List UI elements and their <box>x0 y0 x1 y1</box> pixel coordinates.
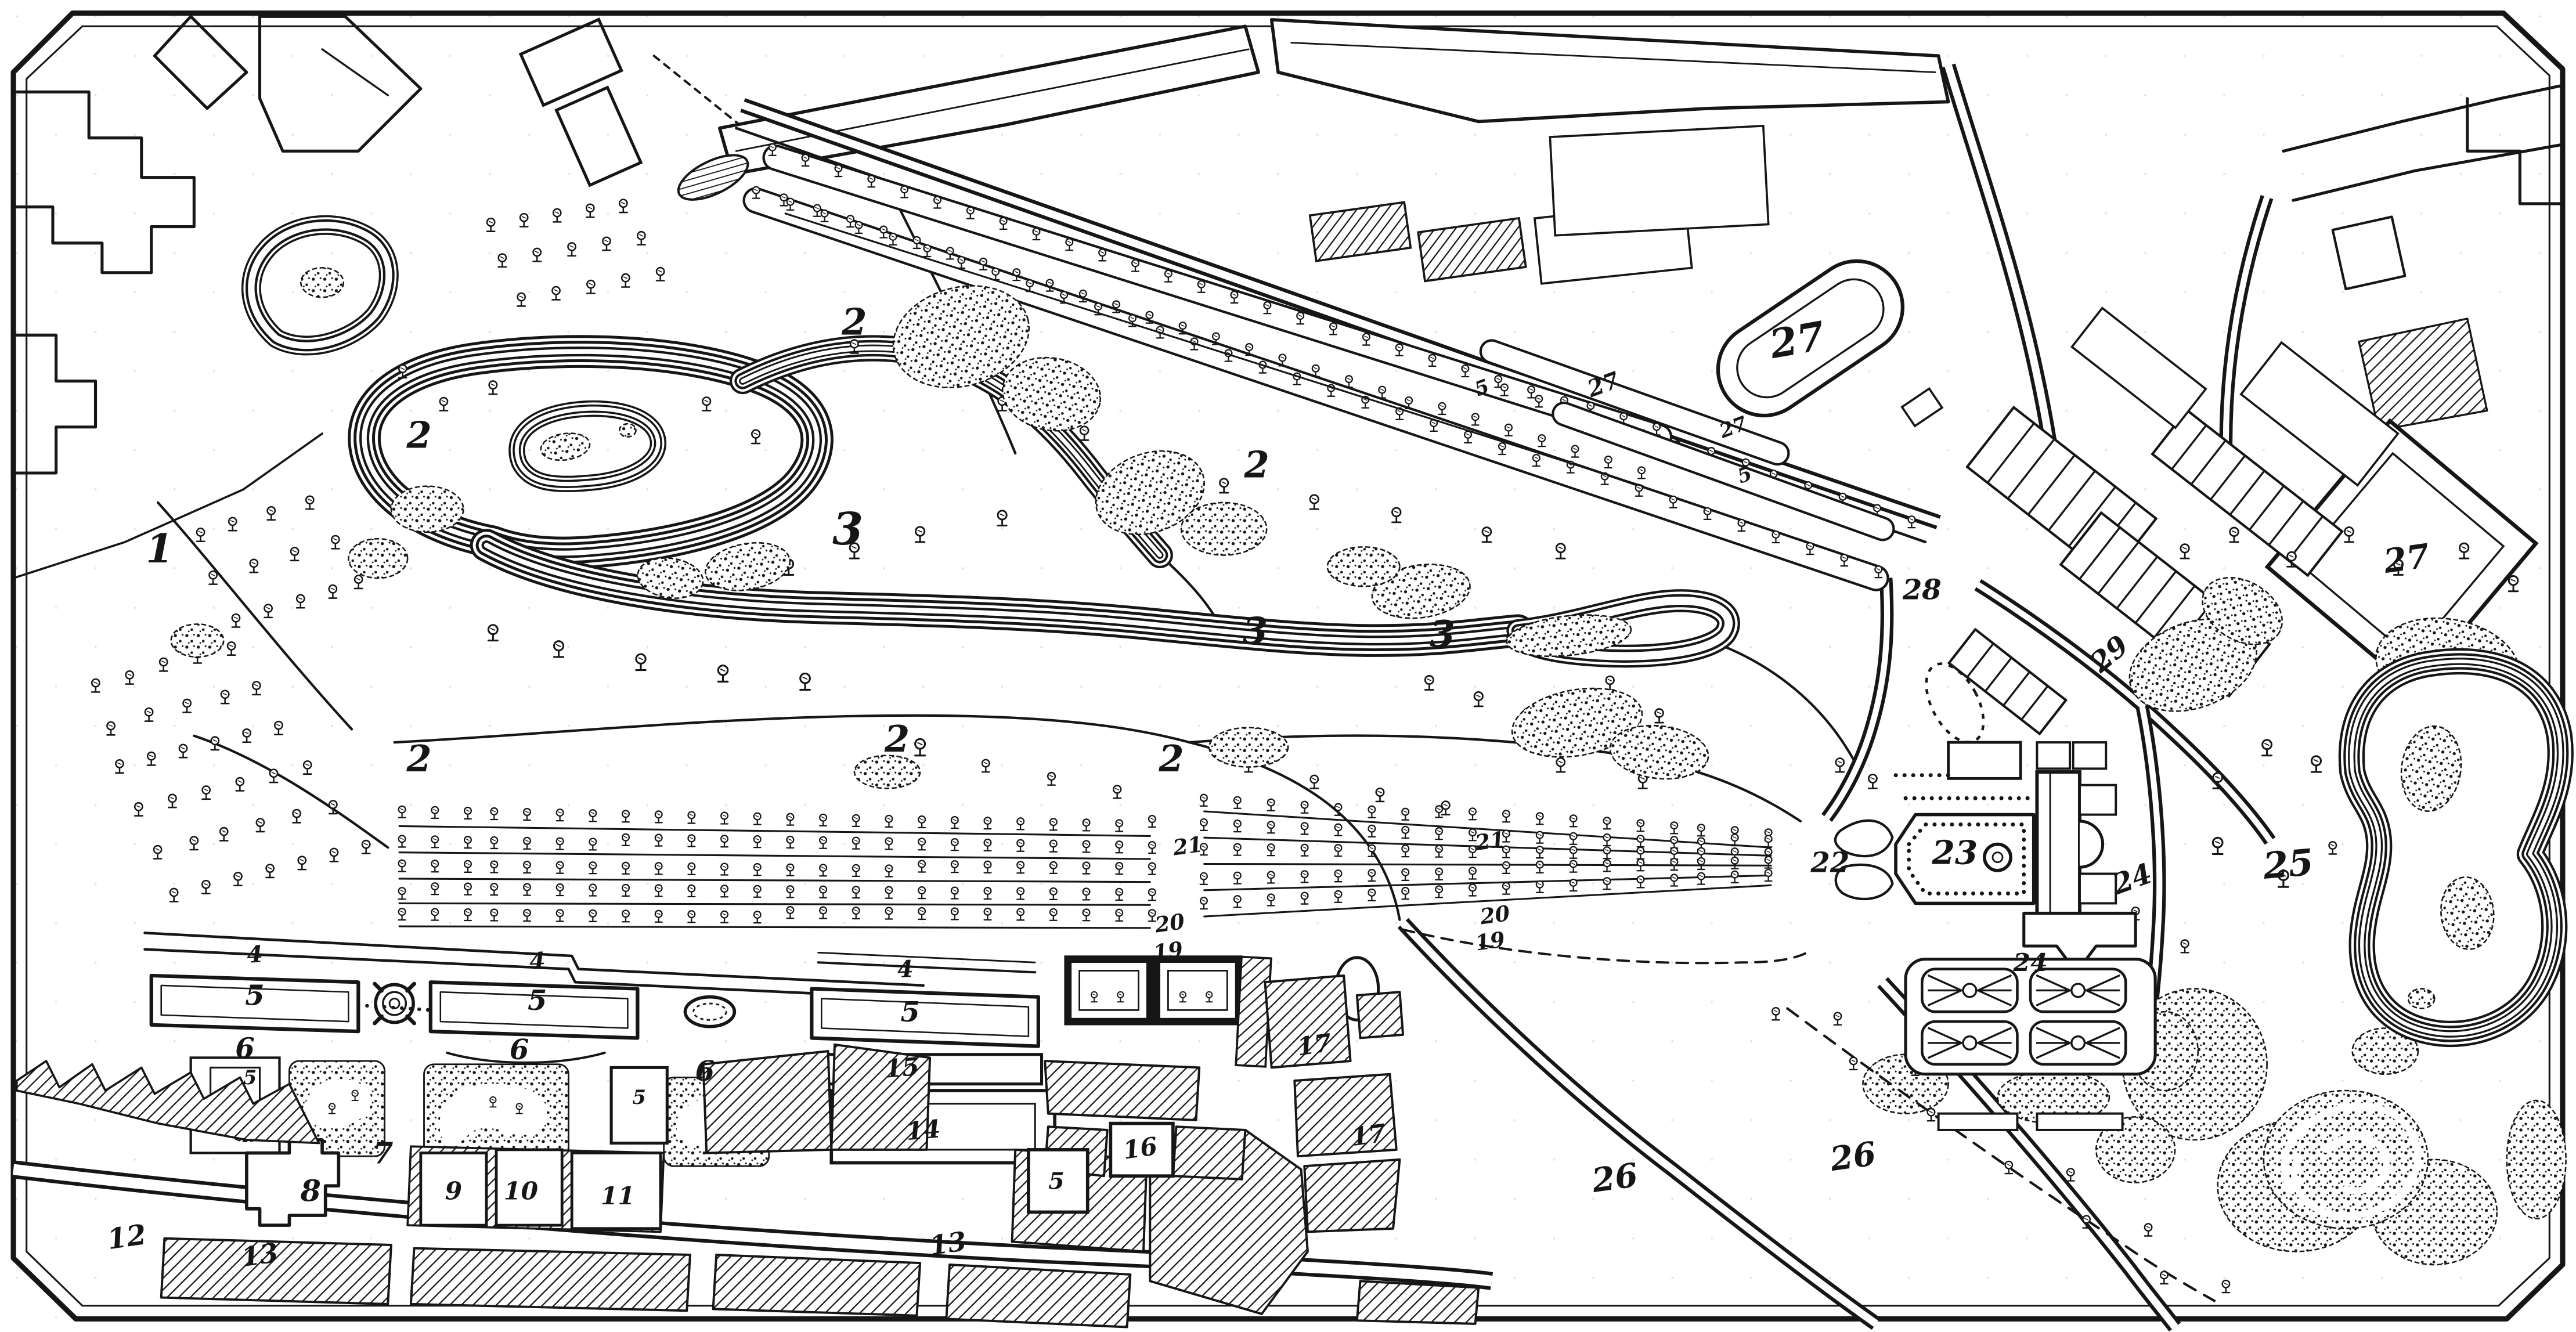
map-label-7-24: 7 <box>373 1136 393 1171</box>
map-label-17-35: 17 <box>1296 1028 1334 1062</box>
map-label-6-23: 6 <box>695 1055 715 1088</box>
map-label-5-17: 5 <box>632 1086 646 1109</box>
map-label-5-15: 5 <box>900 996 919 1028</box>
map-label-6-22: 6 <box>510 1034 529 1066</box>
map-label-20-41: 20 <box>1478 900 1511 930</box>
map-label-13-30: 13 <box>240 1237 280 1273</box>
engraving-layers <box>0 0 2576 1332</box>
map-label-2-6: 2 <box>1158 738 1184 780</box>
map-label-23-44: 23 <box>1932 833 1978 872</box>
map-label-12-29: 12 <box>105 1218 148 1256</box>
map-label-4-11: 4 <box>529 948 546 975</box>
map-label-3-9: 3 <box>1430 613 1455 655</box>
map-label-16-34: 16 <box>1121 1132 1159 1165</box>
map-label-17-36: 17 <box>1350 1118 1388 1152</box>
map-label-2-4: 2 <box>406 738 431 780</box>
map-label-2-3: 2 <box>1244 444 1269 486</box>
map-label-27-50: 27 <box>1766 313 1828 368</box>
page: 1222222333444555555556667891011121313141… <box>0 0 2576 1332</box>
map-label-21-42: 21 <box>1473 826 1507 855</box>
map-label-19-40: 19 <box>1474 926 1507 956</box>
map-label-4-12: 4 <box>897 956 914 983</box>
map-label-20-38: 20 <box>1153 908 1186 938</box>
map-label-3-8: 3 <box>1243 609 1268 652</box>
map-label-24-46: 24 <box>2013 948 2048 977</box>
map-label-2-1: 2 <box>406 414 431 457</box>
map-label-3-7: 3 <box>832 503 863 555</box>
map-label-13-31: 13 <box>928 1225 968 1261</box>
park-plan-map: 1222222333444555555556667891011121313141… <box>0 0 2576 1332</box>
map-label-2-2: 2 <box>841 301 867 343</box>
map-label-10-27: 10 <box>504 1176 539 1205</box>
map-label-25-47: 25 <box>2261 841 2315 887</box>
map-label-22-43: 22 <box>1810 847 1849 879</box>
map-label-5-16: 5 <box>243 1066 257 1089</box>
map-label-5-18: 5 <box>1048 1168 1065 1195</box>
map-label-14-32: 14 <box>905 1114 941 1146</box>
map-label-26-48: 26 <box>1589 1156 1640 1200</box>
map-label-6-21: 6 <box>235 1032 254 1064</box>
map-label-2-5: 2 <box>884 718 910 760</box>
map-label-4-10: 4 <box>246 941 264 968</box>
map-label-21-39: 21 <box>1171 831 1204 861</box>
map-label-5-14: 5 <box>528 984 547 1017</box>
map-label-9-26: 9 <box>445 1176 463 1205</box>
map-label-15-33: 15 <box>883 1052 920 1084</box>
map-label-11-28: 11 <box>601 1182 635 1211</box>
map-label-27-53: 27 <box>2381 537 2432 581</box>
map-label-8-25: 8 <box>300 1174 321 1208</box>
map-label-5-13: 5 <box>245 980 264 1012</box>
map-label-26-49: 26 <box>1827 1135 1878 1179</box>
map-label-1-0: 1 <box>146 526 173 572</box>
map-label-19-37: 19 <box>1152 936 1185 966</box>
map-label-28-54: 28 <box>1902 574 1942 607</box>
